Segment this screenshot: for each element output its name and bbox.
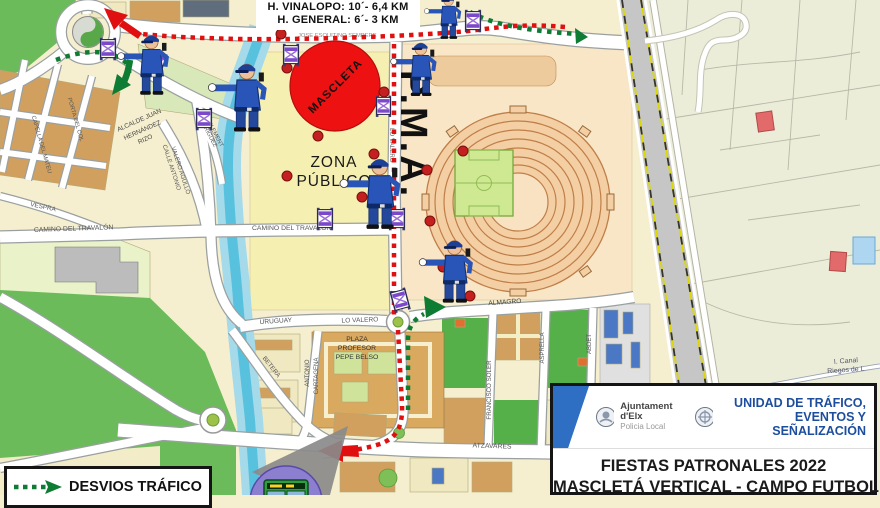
street-label: ABDET (587, 334, 593, 354)
control-point-dot (313, 131, 323, 141)
control-point-dot (425, 216, 435, 226)
blue-ribbon (553, 386, 589, 448)
distance-info-box: H. VINALOPO: 10´- 6,4 KM H. GENERAL: 6´-… (256, 0, 420, 30)
street-label: PROFESOR (338, 345, 376, 352)
control-point-dot (458, 146, 468, 156)
event-info-box: Ajuntament d'Elx Policia Local UNIDAD DE… (550, 383, 877, 495)
org-subtitle: Policia Local (620, 422, 688, 432)
rural-building (756, 111, 774, 132)
unit-line-1: UNIDAD DE TRÁFICO, (719, 396, 866, 410)
unit-line-2: EVENTOS Y SEÑALIZACIÓN (719, 410, 866, 438)
detour-arrow-icon (14, 479, 62, 495)
info-box-header: Ajuntament d'Elx Policia Local UNIDAD DE… (553, 386, 874, 449)
barrier-icon (283, 44, 299, 67)
bus-icon (264, 480, 308, 495)
control-point-dot (379, 87, 389, 97)
roundabout-park (200, 407, 226, 433)
info-box-body: FIESTAS PATRONALES 2022 MASCLETÁ VERTICA… (553, 449, 874, 498)
rural-pond (853, 237, 875, 264)
barrier-icon (100, 38, 116, 61)
control-point-dot (282, 171, 292, 181)
barrier-icon (196, 108, 212, 131)
control-point-dot (369, 149, 379, 159)
police-crest-icon (595, 406, 614, 428)
rural-building (829, 251, 846, 271)
legend-desvios-label: DESVIOS TRÁFICO (69, 479, 202, 495)
street-label: PEPE BELSO (336, 354, 379, 361)
distance-line-1: H. VINALOPO: 10´- 6,4 KM (258, 1, 418, 14)
control-point-dot (357, 192, 367, 202)
barrier-icon (376, 96, 391, 117)
legend-box: DESVIOS TRÁFICO (4, 466, 212, 508)
barrier-icon (465, 10, 481, 33)
street-label: LO VALERO (341, 316, 378, 324)
street-label: FRANCISCO SOLER (486, 360, 493, 420)
control-point-dot (276, 29, 286, 39)
street-label: ASPRELLA (540, 332, 546, 363)
distance-line-2: H. GENERAL: 6´- 3 KM (258, 14, 418, 27)
street-label: CARTAGENA (314, 358, 320, 395)
football-pitch (455, 150, 513, 216)
street-label: ATZAVARES (472, 442, 512, 450)
barrier-icon (317, 208, 333, 231)
control-point-dot (422, 165, 432, 175)
city-crest-icon (694, 406, 713, 428)
org-name: Ajuntament d'Elx (620, 402, 688, 422)
zona-publico-label: ZONA (310, 154, 357, 171)
event-title: FIESTAS PATRONALES 2022 (553, 456, 874, 477)
street-label: PLAZA (346, 336, 368, 343)
mascleta-zone: MASCLETA (290, 41, 380, 131)
street-label: ANTONIO (305, 359, 311, 387)
